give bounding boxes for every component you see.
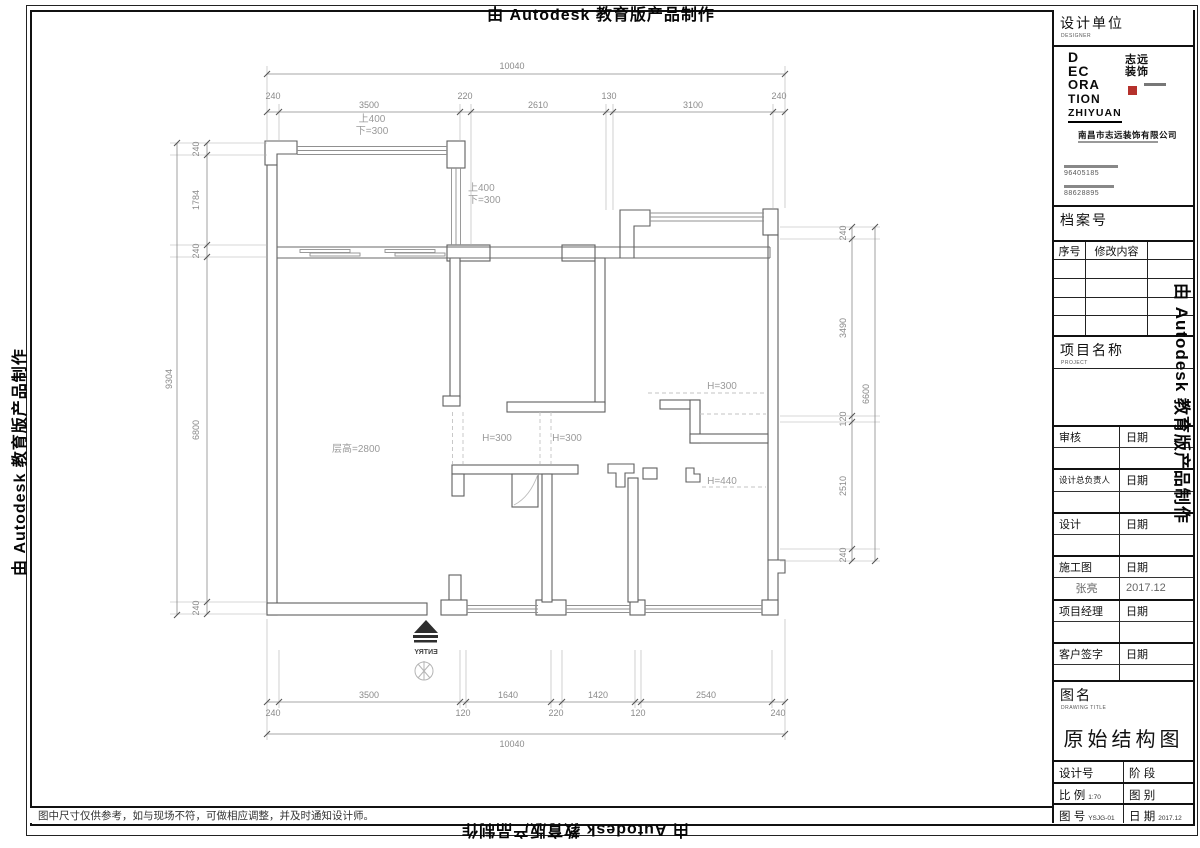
phone-number: 96405185 (1064, 170, 1099, 177)
revision-cell (1054, 316, 1086, 335)
date-label: 日 期 (1129, 808, 1155, 823)
svg-text:3500: 3500 (359, 690, 379, 700)
drafter-name: 张亮 (1054, 578, 1120, 598)
address-line (1064, 185, 1114, 188)
svg-text:3500: 3500 (359, 100, 379, 110)
revision-cell (1086, 279, 1148, 298)
entry-label: ENTRY (414, 649, 438, 656)
svg-text:220: 220 (548, 708, 563, 718)
autodesk-watermark-top: 由 Autodesk 教育版产品制作 (458, 1, 744, 25)
company-logo-section: D EC ORA TION ZHIYUAN 志远 装饰 南昌市志远装饰有限公司 … (1054, 47, 1193, 207)
beam-h300-label: H=300 (482, 433, 512, 444)
archive-section: 档案号 (1054, 207, 1193, 242)
floor-plan: 层高=2800 H=300 H=300 H=300 H=440 上400 下=3… (0, 0, 1200, 848)
sign-label: 设计 (1054, 514, 1120, 534)
revision-cell (1148, 260, 1193, 279)
sign-label: 项目经理 (1054, 601, 1120, 621)
beam-note-down: 下=300 (356, 126, 389, 137)
address-line (1064, 165, 1118, 168)
plan-labels: 层高=2800 H=300 H=300 H=300 H=440 上400 下=3… (332, 182, 737, 487)
svg-text:2540: 2540 (696, 690, 716, 700)
revision-cell (1086, 260, 1148, 279)
beam-h440-label: H=440 (707, 476, 737, 487)
svg-text:130: 130 (601, 91, 616, 101)
seal-tagline (1144, 83, 1166, 86)
revision-cell (1054, 260, 1086, 279)
svg-text:240: 240 (191, 141, 201, 156)
sign-value (1054, 622, 1120, 642)
dim-bottom-overall: 10040 (499, 739, 524, 749)
footer-table: 设计号 阶 段 比 例1:70 图 别 图 号YSJG-01 日 期2017.1… (1054, 762, 1193, 823)
scale-value: 1:70 (1088, 794, 1101, 801)
beam-note-down: 下=300 (468, 195, 501, 206)
drawing-name-section: 图名 DRAWING TITLE 原始结构图 (1054, 682, 1193, 762)
revision-col-content: 修改内容 (1086, 242, 1148, 260)
design-no-label: 设计号 (1059, 765, 1094, 781)
beam-note-up: 上400 (359, 113, 386, 125)
sign-value (1054, 448, 1120, 468)
svg-text:2510: 2510 (838, 476, 848, 496)
drawing-name-sublabel: DRAWING TITLE (1054, 705, 1193, 711)
svg-text:1420: 1420 (588, 690, 608, 700)
company-seal: 志远 装饰 (1125, 54, 1149, 78)
dim-top-overall: 10040 (499, 61, 524, 71)
designer-label: 设计单位 (1054, 10, 1193, 33)
beam-h300-label: H=300 (707, 381, 737, 392)
svg-text:240: 240 (838, 225, 848, 240)
company-name: 南昌市志远装饰有限公司 (1078, 129, 1177, 141)
svg-text:120: 120 (455, 708, 470, 718)
sign-label: 施工图 (1054, 557, 1120, 577)
logo-red-square (1128, 86, 1137, 95)
compass-sketch (415, 661, 433, 680)
svg-text:1640: 1640 (498, 690, 518, 700)
drawing-title: 原始结构图 (1054, 723, 1193, 752)
sign-label: 审核 (1054, 427, 1120, 447)
svg-text:3100: 3100 (683, 100, 703, 110)
scale-label: 比 例 (1059, 787, 1085, 803)
svg-text:240: 240 (191, 243, 201, 258)
drawing-name-label: 图名 (1054, 682, 1193, 705)
revision-cell (1086, 298, 1148, 317)
revision-cell (1054, 279, 1086, 298)
sign-value (1054, 492, 1120, 512)
drawing-no-value: YSJG-01 (1088, 815, 1114, 822)
date-label: 日期 (1120, 644, 1193, 664)
svg-text:240: 240 (191, 600, 201, 615)
sign-label: 设计总负责人 (1054, 470, 1120, 490)
drawing-no-label: 图 号 (1059, 808, 1085, 823)
drawing-sheet: 层高=2800 H=300 H=300 H=300 H=440 上400 下=3… (0, 0, 1200, 848)
svg-text:220: 220 (457, 91, 472, 101)
sign-value (1054, 665, 1120, 682)
revision-col-no: 序号 (1054, 242, 1086, 260)
company-name-en (1078, 141, 1158, 143)
dim-left-overall: 9304 (164, 369, 174, 389)
svg-text:1784: 1784 (191, 190, 201, 210)
date-value (1120, 665, 1193, 682)
autodesk-watermark-right: 由 Autodesk 教育版产品制作 (1171, 283, 1196, 641)
svg-text:120: 120 (630, 708, 645, 718)
date-value: 2017.12 (1158, 815, 1182, 822)
window-lines (277, 147, 770, 613)
svg-text:240: 240 (838, 547, 848, 562)
svg-text:240: 240 (265, 91, 280, 101)
revision-cell (1054, 298, 1086, 317)
svg-text:240: 240 (771, 91, 786, 101)
logo-wordmark: D EC ORA TION ZHIYUAN (1068, 50, 1122, 123)
svg-text:240: 240 (770, 708, 785, 718)
floor-height-label: 层高=2800 (332, 442, 381, 455)
dim-right-overall: 6600 (861, 384, 871, 404)
svg-text:240: 240 (265, 708, 280, 718)
beam-note-up: 上400 (468, 182, 495, 194)
designer-section: 设计单位 DESIGNER (1054, 10, 1193, 47)
archive-label: 档案号 (1054, 207, 1193, 230)
svg-text:3490: 3490 (838, 318, 848, 338)
svg-text:2610: 2610 (528, 100, 548, 110)
beam-h300-label: H=300 (552, 433, 582, 444)
sign-value (1054, 535, 1120, 555)
svg-text:120: 120 (838, 411, 848, 426)
entry-symbol: ENTRY (413, 620, 438, 680)
autodesk-watermark-left: 由 Autodesk 教育版产品制作 (6, 286, 30, 576)
phone-number: 88628895 (1064, 190, 1099, 197)
walls (265, 141, 785, 615)
category-label: 图 别 (1129, 787, 1155, 803)
autodesk-watermark-bottom: 由 Autodesk 教育版产品制作 (432, 820, 718, 844)
svg-text:6800: 6800 (191, 420, 201, 440)
stage-label: 阶 段 (1129, 765, 1155, 781)
revision-col-extra (1148, 242, 1193, 260)
sign-label: 客户签字 (1054, 644, 1120, 664)
revision-cell (1086, 316, 1148, 335)
designer-sublabel: DESIGNER (1054, 33, 1193, 39)
